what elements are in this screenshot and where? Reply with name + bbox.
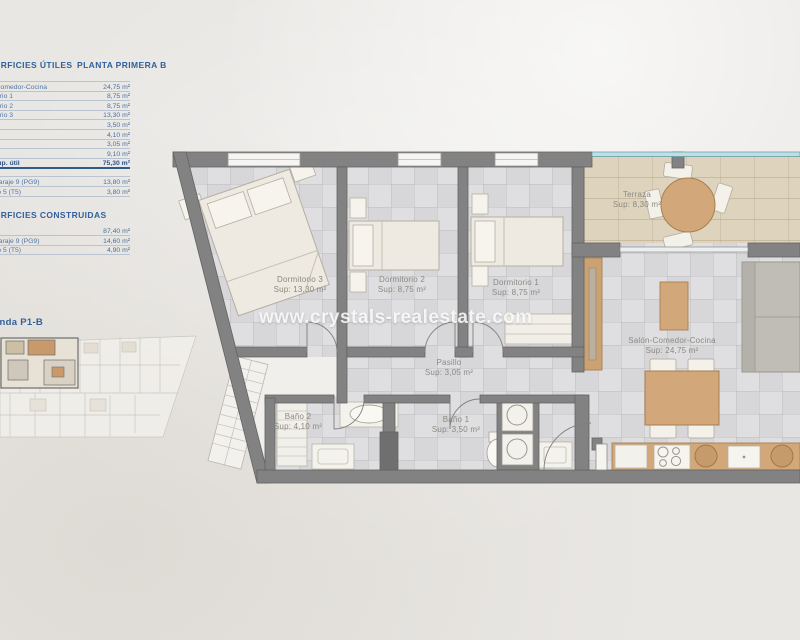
- room-area: Sup: 8,75 m²: [492, 288, 540, 298]
- room-area: Sup: 13,30 m²: [274, 285, 327, 295]
- room-label-terraza: Terraza Sup: 8,30 m²: [613, 190, 661, 210]
- laundry-column: [497, 396, 539, 470]
- room-area: Sup: 3,50 m²: [432, 425, 480, 435]
- room-label-bano1: Baño 1 Sup: 3,50 m²: [432, 415, 480, 435]
- room-name: Terraza: [613, 190, 661, 200]
- room-name: Dormitorio 1: [492, 278, 540, 288]
- glass-railing: [592, 152, 800, 157]
- room-area: Sup: 3,05 m²: [425, 368, 473, 378]
- room-area: Sup: 8,75 m²: [378, 285, 426, 295]
- sideboard: [660, 282, 688, 330]
- room-label-pasillo: Pasillo Sup: 3,05 m²: [425, 358, 473, 378]
- room-area: Sup: 24,75 m²: [628, 346, 716, 356]
- dining-table-set: [645, 359, 719, 438]
- sofa: [742, 262, 800, 372]
- room-area: Sup: 4,10 m²: [274, 422, 322, 432]
- room-label-dormitorio2: Dormitorio 2 Sup: 8,75 m²: [378, 275, 426, 295]
- room-name: Baño 2: [274, 412, 322, 422]
- sliding-glass-door: [620, 247, 748, 252]
- entry-door-leaf: [596, 444, 607, 470]
- room-name: Salón-Comedor-Cocina: [628, 336, 716, 346]
- room-name: Baño 1: [432, 415, 480, 425]
- room-label-dormitorio1: Dormitorio 1 Sup: 8,75 m²: [492, 278, 540, 298]
- room-label-bano2: Baño 2 Sup: 4,10 m²: [274, 412, 322, 432]
- room-name: Dormitorio 2: [378, 275, 426, 285]
- room-area: Sup: 8,30 m²: [613, 200, 661, 210]
- room-label-salon: Salón-Comedor-Cocina Sup: 24,75 m²: [628, 336, 716, 356]
- wardrobe: [584, 258, 602, 370]
- room-name: Dormitorio 3: [274, 275, 327, 285]
- kitchen-counter: [612, 443, 800, 470]
- watermark-text: www.crystals-realestate.com: [259, 307, 533, 329]
- room-label-dormitorio3: Dormitorio 3 Sup: 13,30 m²: [274, 275, 327, 295]
- room-name: Pasillo: [425, 358, 473, 368]
- floorplan-page: SUPERFICIES ÚTILES PLANTA PRIMERA B Saló…: [0, 0, 800, 640]
